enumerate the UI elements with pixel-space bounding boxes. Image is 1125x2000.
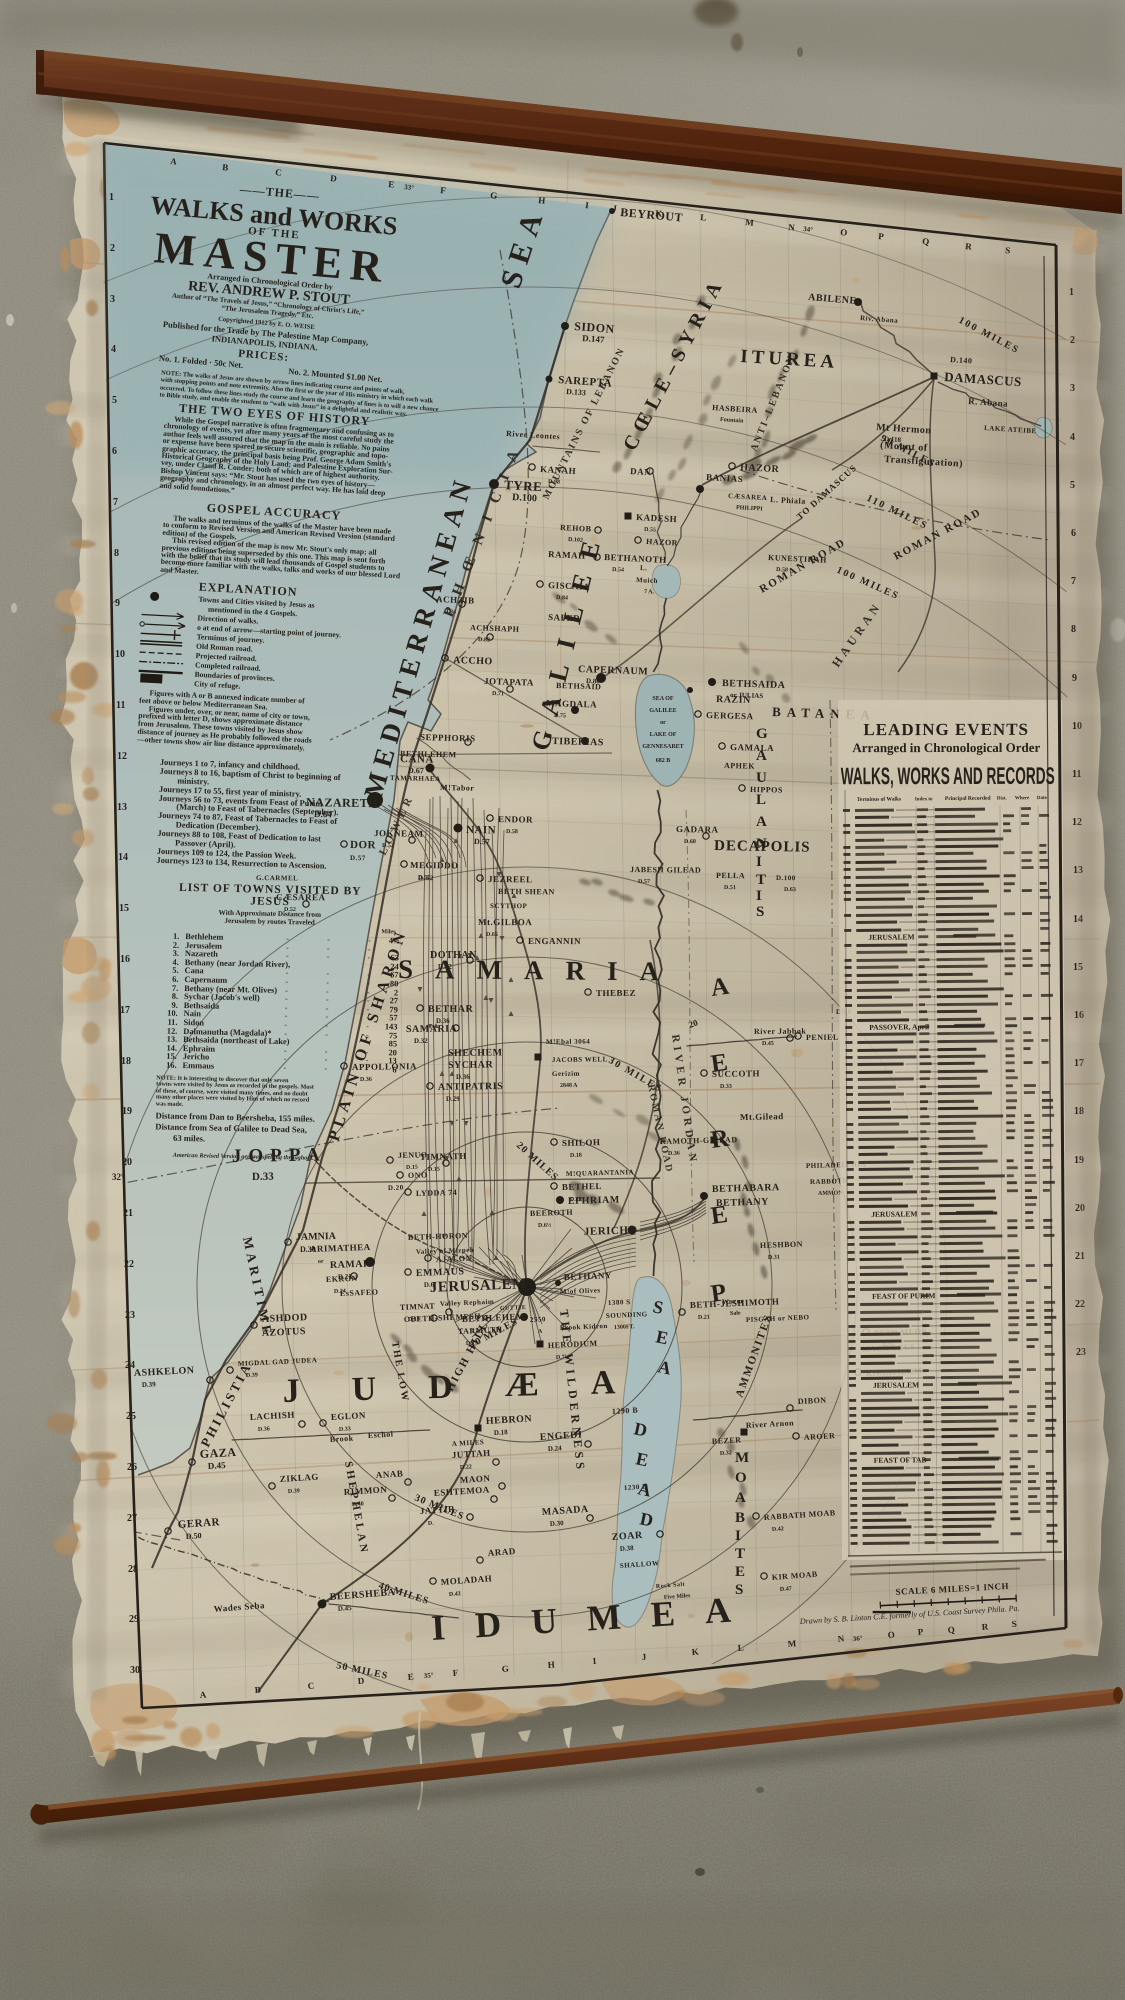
svg-text:D.33: D.33 <box>720 1084 732 1090</box>
svg-text:HAZOR: HAZOR <box>740 462 780 475</box>
svg-text:D.32: D.32 <box>720 1450 732 1457</box>
svg-text:63: 63 <box>390 953 399 962</box>
svg-text:32°: 32° <box>112 1172 125 1182</box>
svg-text:Mt.GILBOA: Mt.GILBOA <box>478 917 532 927</box>
svg-text:13.: 13. <box>167 1035 178 1044</box>
svg-text:Brook: Brook <box>330 1434 354 1444</box>
svg-text:D.18: D.18 <box>494 1428 509 1437</box>
svg-text:S: S <box>735 1582 743 1598</box>
svg-text:BETHEL: BETHEL <box>562 1181 602 1192</box>
svg-text:B: B <box>735 1510 745 1526</box>
svg-text:THEBEZ: THEBEZ <box>596 988 636 998</box>
svg-text:63 miles.: 63 miles. <box>173 1133 205 1144</box>
svg-text:D.50: D.50 <box>186 1531 202 1541</box>
svg-text:D.52: D.52 <box>418 874 434 882</box>
svg-text:19: 19 <box>122 1106 132 1117</box>
svg-text:5: 5 <box>1070 480 1075 491</box>
svg-text:D.39: D.39 <box>288 1488 300 1495</box>
svg-text:T: T <box>735 1546 745 1562</box>
svg-text:A: A <box>756 814 767 830</box>
svg-text:BETHABARA: BETHABARA <box>712 1182 780 1195</box>
svg-text:Emmaus: Emmaus <box>183 1061 216 1071</box>
svg-text:D.52: D.52 <box>382 843 394 849</box>
svg-text:D.21: D.21 <box>698 1315 710 1321</box>
svg-text:D.100: D.100 <box>776 874 796 882</box>
svg-text:L.: L. <box>640 564 648 572</box>
svg-text:Miles: Miles <box>381 929 396 935</box>
svg-text:L: L <box>700 212 707 223</box>
svg-text:Gerizim: Gerizim <box>552 1070 580 1078</box>
svg-text:16: 16 <box>120 954 130 965</box>
svg-text:EKRON: EKRON <box>326 1274 358 1284</box>
svg-text:JOKNEAM: JOKNEAM <box>374 828 424 839</box>
svg-text:13: 13 <box>117 802 127 813</box>
svg-text:D.38: D.38 <box>620 1544 635 1553</box>
svg-text:D.6½: D.6½ <box>538 1222 552 1229</box>
svg-text:34°: 34° <box>803 225 814 234</box>
svg-text:PENIEL: PENIEL <box>806 1033 839 1042</box>
svg-text:U: U <box>756 770 767 786</box>
svg-text:or: or <box>660 720 666 726</box>
svg-text:D.18: D.18 <box>570 1153 582 1159</box>
svg-text:JOPPA: JOPPA <box>232 1144 327 1167</box>
svg-text:1.: 1. <box>173 932 179 941</box>
svg-text:23: 23 <box>125 1310 135 1321</box>
svg-text:M: M <box>787 1638 797 1649</box>
svg-text:SCYTHOP: SCYTHOP <box>490 902 528 910</box>
svg-text:BETHLEHEM: BETHLEHEM <box>400 749 457 759</box>
svg-text:17: 17 <box>120 1005 130 1016</box>
svg-text:D.102: D.102 <box>568 537 583 544</box>
svg-text:BEZER: BEZER <box>712 1435 742 1446</box>
svg-text:1380 S: 1380 S <box>608 1298 631 1307</box>
svg-text:D.82: D.82 <box>478 637 490 643</box>
svg-text:WALKS, WORKS AND RECORDS: WALKS, WORKS AND RECORDS <box>841 763 1055 790</box>
svg-text:MAON: MAON <box>459 1473 490 1485</box>
svg-text:D.33: D.33 <box>252 1171 274 1183</box>
svg-text:ARAD: ARAD <box>487 1546 516 1558</box>
svg-text:Sale: Sale <box>730 1311 741 1317</box>
svg-text:D.47: D.47 <box>780 1586 792 1593</box>
svg-text:D.45: D.45 <box>762 1041 774 1047</box>
svg-text:K: K <box>691 1646 699 1657</box>
svg-text:LAKE OF: LAKE OF <box>650 732 677 738</box>
svg-text:D.57: D.57 <box>638 879 650 885</box>
svg-text:JESUS: JESUS <box>250 895 290 908</box>
svg-text:14: 14 <box>118 852 128 863</box>
svg-text:SYCHAR: SYCHAR <box>448 1059 494 1071</box>
svg-text:BANIAS: BANIAS <box>706 472 744 484</box>
svg-text:GALILEE: GALILEE <box>649 708 676 714</box>
svg-text:HIPPOS: HIPPOS <box>750 785 783 795</box>
svg-text:D.98: D.98 <box>548 479 560 486</box>
svg-text:Q: Q <box>922 236 930 247</box>
svg-text:D.100: D.100 <box>512 492 537 504</box>
svg-text:ENGANNIN: ENGANNIN <box>528 936 581 946</box>
svg-text:24: 24 <box>125 1360 135 1371</box>
svg-text:SUCCOTH: SUCCOTH <box>712 1068 760 1079</box>
svg-text:G: G <box>490 190 498 201</box>
svg-text:D.57: D.57 <box>474 837 490 846</box>
svg-text:JAMNIA: JAMNIA <box>296 1231 337 1243</box>
svg-text:7: 7 <box>1071 576 1076 587</box>
svg-text:Mt.Gilead: Mt.Gilead <box>740 1111 784 1122</box>
svg-text:C: C <box>307 1680 314 1691</box>
svg-text:8: 8 <box>114 548 119 559</box>
svg-text:L. Phiala: L. Phiala <box>770 495 806 506</box>
svg-text:D.24: D.24 <box>548 1444 563 1453</box>
svg-text:Dist.: Dist. <box>997 796 1008 801</box>
svg-text:15.: 15. <box>166 1052 177 1061</box>
svg-text:Where: Where <box>1015 796 1030 801</box>
svg-text:15: 15 <box>119 903 129 914</box>
svg-text:2550: 2550 <box>530 1315 546 1324</box>
svg-text:HAZOR: HAZOR <box>646 537 678 548</box>
svg-text:AJALON: AJALON <box>436 1254 472 1264</box>
svg-text:5.: 5. <box>172 966 178 975</box>
svg-text:M: M <box>735 1450 749 1466</box>
svg-text:29: 29 <box>129 1614 139 1625</box>
svg-text:D.30: D.30 <box>550 1519 565 1528</box>
svg-text:GAZA: GAZA <box>199 1445 236 1461</box>
svg-text:SAFED: SAFED <box>548 612 580 623</box>
svg-text:D.63: D.63 <box>784 887 796 893</box>
svg-text:4: 4 <box>1070 432 1075 443</box>
svg-text:D.22: D.22 <box>460 1464 472 1471</box>
svg-text:E: E <box>735 1564 745 1580</box>
svg-text:TIMNAT: TIMNAT <box>400 1302 436 1312</box>
svg-text:D.133: D.133 <box>566 387 586 397</box>
svg-text:D.42: D.42 <box>772 1526 784 1533</box>
svg-text:O: O <box>887 1629 895 1640</box>
svg-text:TAMARHAEA: TAMARHAEA <box>390 774 441 783</box>
svg-text:2848 A: 2848 A <box>560 1083 578 1089</box>
svg-text:D.43: D.43 <box>449 1591 461 1598</box>
svg-text:25: 25 <box>126 1411 136 1422</box>
svg-text:4: 4 <box>111 344 116 355</box>
svg-text:I: I <box>756 854 762 870</box>
svg-text:22: 22 <box>124 1259 134 1270</box>
svg-text:or: or <box>318 1259 324 1265</box>
svg-text:D.36: D.36 <box>360 1077 372 1083</box>
svg-text:D.58: D.58 <box>776 567 788 574</box>
svg-text:D.54: D.54 <box>612 567 624 574</box>
svg-text:D.40: D.40 <box>352 1501 364 1508</box>
svg-text:AZOTUS: AZOTUS <box>262 1326 307 1339</box>
svg-text:LEADING EVENTS: LEADING EVENTS <box>863 720 1029 739</box>
svg-text:KANAH: KANAH <box>540 464 577 476</box>
svg-text:D.55: D.55 <box>644 527 656 534</box>
svg-text:EGLON: EGLON <box>331 1410 367 1422</box>
svg-text:E: E <box>407 1672 414 1682</box>
svg-text:SEPPHORIS: SEPPHORIS <box>420 732 476 743</box>
svg-text:A: A <box>709 973 731 1002</box>
svg-text:GERGESA: GERGESA <box>706 710 754 721</box>
svg-text:D.42: D.42 <box>438 963 452 971</box>
svg-text:JERUSALEM: JERUSALEM <box>868 932 914 941</box>
svg-text:Sidon: Sidon <box>183 1018 204 1027</box>
svg-text:28: 28 <box>128 1564 138 1575</box>
svg-text:D.65: D.65 <box>486 932 498 938</box>
svg-text:D.13: D.13 <box>466 1340 478 1347</box>
svg-text:27: 27 <box>390 996 399 1005</box>
svg-text:I: I <box>756 888 762 904</box>
svg-text:8.: 8. <box>172 992 178 1001</box>
svg-text:C: C <box>275 167 283 178</box>
svg-text:9: 9 <box>1072 673 1077 684</box>
svg-text:D.51: D.51 <box>724 885 736 891</box>
svg-text:6: 6 <box>392 1065 396 1074</box>
svg-text:S: S <box>756 904 764 920</box>
svg-text:27: 27 <box>127 1513 137 1524</box>
svg-text:GENNESARET: GENNESARET <box>642 744 683 750</box>
svg-text:D.71: D.71 <box>492 691 504 697</box>
svg-text:APHEK: APHEK <box>724 761 755 771</box>
svg-text:L: L <box>756 792 766 808</box>
svg-text:JACOBS WELL: JACOBS WELL <box>552 1055 608 1064</box>
svg-text:FEAST OF TAB-: FEAST OF TAB- <box>874 1455 930 1465</box>
svg-text:Arranged in Chronological Orde: Arranged in Chronological Order <box>852 740 1040 755</box>
svg-text:M!Ebal 3064: M!Ebal 3064 <box>546 1038 590 1046</box>
svg-text:D.147: D.147 <box>582 333 605 345</box>
svg-text:D.75: D.75 <box>554 713 566 719</box>
svg-text:D.84: D.84 <box>556 595 568 602</box>
svg-text:DIBON: DIBON <box>798 1396 827 1406</box>
svg-text:D.45: D.45 <box>208 1460 227 1471</box>
svg-text:NAIN: NAIN <box>466 824 496 836</box>
svg-text:D.140: D.140 <box>950 355 973 366</box>
svg-text:D.29: D.29 <box>446 1095 460 1103</box>
svg-text:GADARA: GADARA <box>676 824 719 835</box>
svg-text:JERUSALEM: JERUSALEM <box>871 1209 917 1218</box>
svg-text:H: H <box>547 1659 555 1670</box>
svg-text:D.58: D.58 <box>506 829 518 835</box>
svg-text:18: 18 <box>121 1056 131 1067</box>
svg-text:S: S <box>1005 245 1011 255</box>
svg-text:80: 80 <box>390 979 399 988</box>
svg-text:RAMAH: RAMAH <box>330 1258 372 1271</box>
svg-text:ACHZIB: ACHZIB <box>436 594 475 606</box>
svg-text:JERICHO: JERICHO <box>584 1224 638 1238</box>
svg-text:BETHSAID: BETHSAID <box>556 681 602 691</box>
svg-text:D.36: D.36 <box>668 1151 680 1157</box>
svg-text:DOTHAN: DOTHAN <box>430 950 477 961</box>
svg-text:6: 6 <box>1071 528 1076 539</box>
svg-text:ZOAR: ZOAR <box>611 1530 643 1543</box>
svg-text:BETHANY: BETHANY <box>564 1270 612 1282</box>
svg-text:B: B <box>222 162 229 173</box>
svg-text:DAN: DAN <box>630 466 652 477</box>
svg-text:SEA OF: SEA OF <box>652 696 674 702</box>
svg-text:JABESH GILEAD: JABESH GILEAD <box>630 865 701 875</box>
svg-text:G: G <box>756 726 768 742</box>
svg-text:D.39: D.39 <box>246 1372 258 1379</box>
svg-text:ANAB: ANAB <box>376 1468 404 1480</box>
svg-text:D.39: D.39 <box>142 1380 157 1389</box>
svg-text:RAMOTH-GILEAD: RAMOTH-GILEAD <box>660 1135 738 1146</box>
svg-text:7 A.: 7 A. <box>644 589 655 595</box>
svg-text:RAMAH: RAMAH <box>548 549 586 561</box>
svg-text:RAZIN: RAZIN <box>716 694 751 706</box>
svg-text:TIBERIAS: TIBERIAS <box>552 736 604 748</box>
svg-text:26: 26 <box>127 1462 137 1473</box>
svg-text:M!Tabor: M!Tabor <box>440 783 474 793</box>
svg-text:30: 30 <box>130 1665 140 1676</box>
svg-text:1300FT.: 1300FT. <box>614 1324 635 1331</box>
svg-text:1290 B: 1290 B <box>612 1406 639 1416</box>
svg-text:3.: 3. <box>173 949 179 958</box>
svg-text:O: O <box>735 1470 747 1486</box>
svg-text:D.15: D.15 <box>428 1167 440 1173</box>
svg-text:JOTAPATA: JOTAPATA <box>484 676 534 688</box>
svg-text:D.60: D.60 <box>684 839 696 845</box>
svg-text:Q: Q <box>947 1624 955 1635</box>
svg-text:SAMARIA: SAMARIA <box>406 1024 458 1035</box>
svg-text:K: K <box>655 208 663 219</box>
svg-text:AMMON: AMMON <box>818 1190 843 1197</box>
svg-text:Eschol: Eschol <box>368 1430 394 1440</box>
svg-text:D.30: D.30 <box>300 1245 316 1254</box>
svg-text:D.36: D.36 <box>456 1073 470 1081</box>
svg-text:16.: 16. <box>166 1061 177 1070</box>
svg-text:D.36: D.36 <box>258 1426 270 1433</box>
svg-text:L: L <box>737 1643 744 1653</box>
svg-text:682 B: 682 B <box>656 758 671 764</box>
svg-text:EsSAFEO: EsSAFEO <box>340 1287 379 1298</box>
svg-text:10.: 10. <box>167 1009 178 1018</box>
svg-text:Index to: Index to <box>915 797 933 802</box>
svg-text:BETHAR: BETHAR <box>428 1004 474 1015</box>
svg-text:EPHRIAM: EPHRIAM <box>568 1194 620 1207</box>
svg-text:REHOB: REHOB <box>560 523 592 534</box>
svg-text:D.84: D.84 <box>444 609 456 615</box>
svg-text:MAGDALA: MAGDALA <box>546 698 597 710</box>
svg-text:HESHBON: HESHBON <box>760 1240 803 1250</box>
svg-text:Nain: Nain <box>184 1009 202 1018</box>
svg-text:57: 57 <box>389 1013 398 1022</box>
svg-text:LYDDA 74: LYDDA 74 <box>416 1188 458 1198</box>
svg-text:G: G <box>501 1663 509 1674</box>
svg-text:G.CARMEL: G.CARMEL <box>256 874 298 882</box>
svg-text:10: 10 <box>115 649 125 660</box>
svg-text:M: M <box>745 217 755 228</box>
svg-text:8: 8 <box>1071 624 1076 635</box>
svg-text:85: 85 <box>389 1039 398 1048</box>
svg-text:SHECHEM: SHECHEM <box>448 1047 503 1059</box>
svg-text:DOR: DOR <box>350 839 377 851</box>
svg-text:2: 2 <box>110 243 115 254</box>
svg-text:D.45: D.45 <box>338 1604 353 1613</box>
svg-text:33°: 33° <box>404 183 415 192</box>
svg-text:O: O <box>840 227 848 238</box>
svg-text:67: 67 <box>390 970 399 979</box>
svg-text:BETH SHEAN: BETH SHEAN <box>498 887 555 896</box>
svg-text:D.31: D.31 <box>768 1255 780 1261</box>
svg-text:M!of Olives: M!of Olives <box>560 1286 601 1296</box>
svg-text:11.: 11. <box>167 1018 177 1027</box>
svg-text:ACCHO: ACCHO <box>453 655 493 667</box>
svg-text:1230 B: 1230 B <box>624 1483 648 1492</box>
svg-text:E: E <box>388 179 395 190</box>
svg-text:3: 3 <box>1070 383 1075 394</box>
svg-text:A: A <box>735 1490 746 1506</box>
svg-text:I: I <box>735 1528 741 1544</box>
svg-text:Muich: Muich <box>636 576 658 585</box>
svg-text:7: 7 <box>113 497 118 508</box>
svg-text:GAMALA: GAMALA <box>730 742 774 753</box>
svg-text:1: 1 <box>109 192 114 203</box>
svg-text:TYRE: TYRE <box>504 477 543 494</box>
svg-text:ASHDOD: ASHDOD <box>262 1312 308 1325</box>
svg-text:4½: 4½ <box>389 936 400 945</box>
svg-text:T: T <box>756 872 766 888</box>
svg-text:MEGIDDO: MEGIDDO <box>410 860 459 871</box>
svg-text:was made.: was made. <box>156 1100 184 1108</box>
svg-text:S: S <box>1011 1619 1017 1629</box>
svg-text:20: 20 <box>122 1157 132 1168</box>
svg-text:BETHANY: BETHANY <box>716 1196 770 1209</box>
svg-text:6: 6 <box>112 446 117 457</box>
svg-text:PELLA: PELLA <box>716 871 745 880</box>
svg-text:D.57: D.57 <box>350 854 366 862</box>
svg-text:TIMNATH: TIMNATH <box>420 1151 467 1162</box>
svg-text:JERUSALEM: JERUSALEM <box>873 1380 919 1389</box>
svg-text:ONO: ONO <box>408 1170 428 1180</box>
svg-text:ARIMATHEA: ARIMATHEA <box>310 1242 371 1254</box>
svg-text:D.20: D.20 <box>388 1184 404 1192</box>
svg-text:Cana: Cana <box>185 966 205 975</box>
svg-text:Principal Recorded: Principal Recorded <box>945 796 991 802</box>
svg-text:SHILOH: SHILOH <box>562 1137 601 1148</box>
svg-text:BETHSAIDA: BETHSAIDA <box>722 678 786 691</box>
svg-text:13: 13 <box>388 1056 397 1065</box>
svg-text:River Jabbok: River Jabbok <box>754 1027 806 1036</box>
svg-text:ACHSHAPH: ACHSHAPH <box>470 623 520 634</box>
svg-text:5: 5 <box>112 395 117 406</box>
svg-text:35°: 35° <box>423 1671 434 1680</box>
svg-text:D.33: D.33 <box>339 1426 351 1433</box>
svg-text:GISCAIA: GISCAIA <box>548 580 590 592</box>
svg-text:AROER: AROER <box>804 1431 836 1442</box>
svg-text:11: 11 <box>116 700 125 711</box>
svg-text:D.32: D.32 <box>414 1037 428 1045</box>
svg-text:H: H <box>538 195 546 206</box>
svg-text:ANTIPATRIS: ANTIPATRIS <box>438 1081 503 1093</box>
svg-text:ENDOR: ENDOR <box>498 814 533 825</box>
svg-text:Date: Date <box>1037 796 1048 801</box>
svg-text:Terminus of Walks: Terminus of Walks <box>857 796 901 802</box>
svg-text:9: 9 <box>115 598 120 609</box>
svg-text:B: B <box>254 1685 261 1695</box>
svg-text:21: 21 <box>123 1208 133 1219</box>
svg-text:JEZREEL: JEZREEL <box>488 874 533 884</box>
svg-text:12: 12 <box>117 751 127 762</box>
svg-text:D.: D. <box>428 1521 435 1527</box>
svg-text:3: 3 <box>110 294 115 305</box>
svg-text:36°: 36° <box>852 1634 863 1643</box>
svg-text:D.7½: D.7½ <box>556 1353 570 1361</box>
svg-text:BEEROTH: BEEROTH <box>530 1208 574 1218</box>
svg-text:6.: 6. <box>172 975 178 984</box>
svg-text:EMMAUS: EMMAUS <box>416 1266 465 1279</box>
